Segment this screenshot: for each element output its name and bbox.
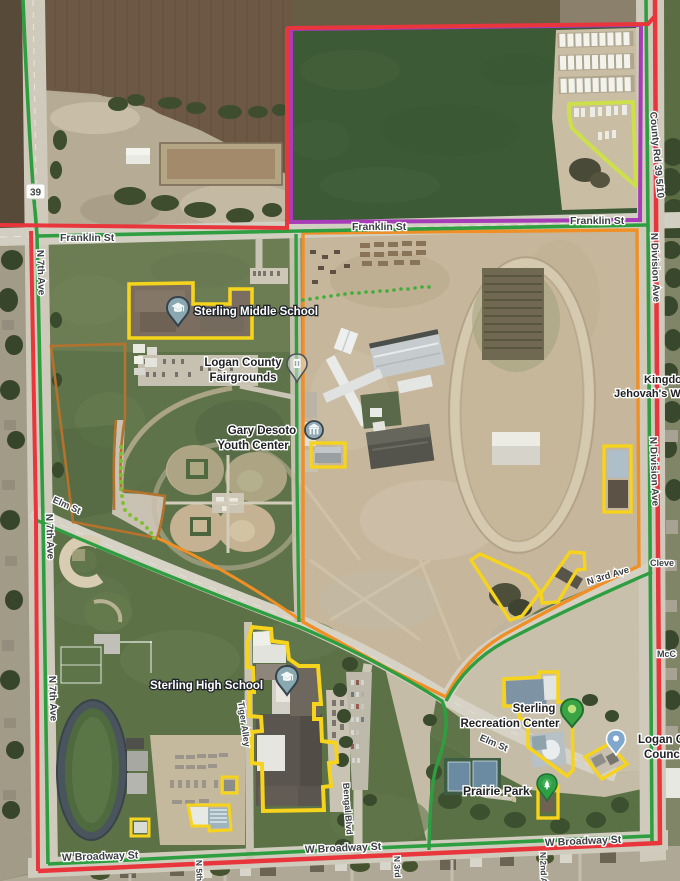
svg-text:Franklin St: Franklin St (570, 215, 625, 227)
svg-text:Youth Center: Youth Center (217, 440, 289, 452)
svg-text:N 2nd Ave: N 2nd Ave (538, 852, 549, 881)
svg-text:N 7th Ave: N 7th Ave (46, 676, 59, 722)
svg-text:Gary Desoto: Gary Desoto (228, 425, 296, 437)
svg-text:Fairgrounds: Fairgrounds (209, 372, 276, 384)
svg-text:Logan Co: Logan Co (638, 734, 680, 746)
svg-text:Franklin St: Franklin St (60, 232, 115, 244)
svg-text:N 3rd: N 3rd (392, 856, 403, 878)
svg-text:Recreation Center: Recreation Center (460, 718, 560, 730)
svg-text:McC: McC (657, 649, 677, 659)
svg-text:Cleve: Cleve (650, 558, 674, 568)
svg-text:N 7th Ave: N 7th Ave (34, 250, 47, 296)
svg-text:N 7th Ave: N 7th Ave (43, 514, 56, 560)
svg-text:Sterling High School: Sterling High School (150, 680, 263, 692)
svg-text:Prairie Park: Prairie Park (463, 784, 530, 798)
svg-text:Jehovah's W: Jehovah's W (614, 388, 680, 400)
svg-text:Council: Council (644, 749, 680, 761)
svg-text:Sterling Middle School: Sterling Middle School (194, 306, 318, 318)
svg-text:Franklin St: Franklin St (352, 221, 407, 233)
svg-text:Kingdom H: Kingdom H (644, 374, 680, 386)
svg-text:N 5th Ave: N 5th Ave (194, 860, 205, 881)
svg-text:Sterling: Sterling (513, 703, 556, 715)
svg-text:39: 39 (30, 188, 42, 199)
svg-text:Logan County: Logan County (204, 357, 282, 369)
